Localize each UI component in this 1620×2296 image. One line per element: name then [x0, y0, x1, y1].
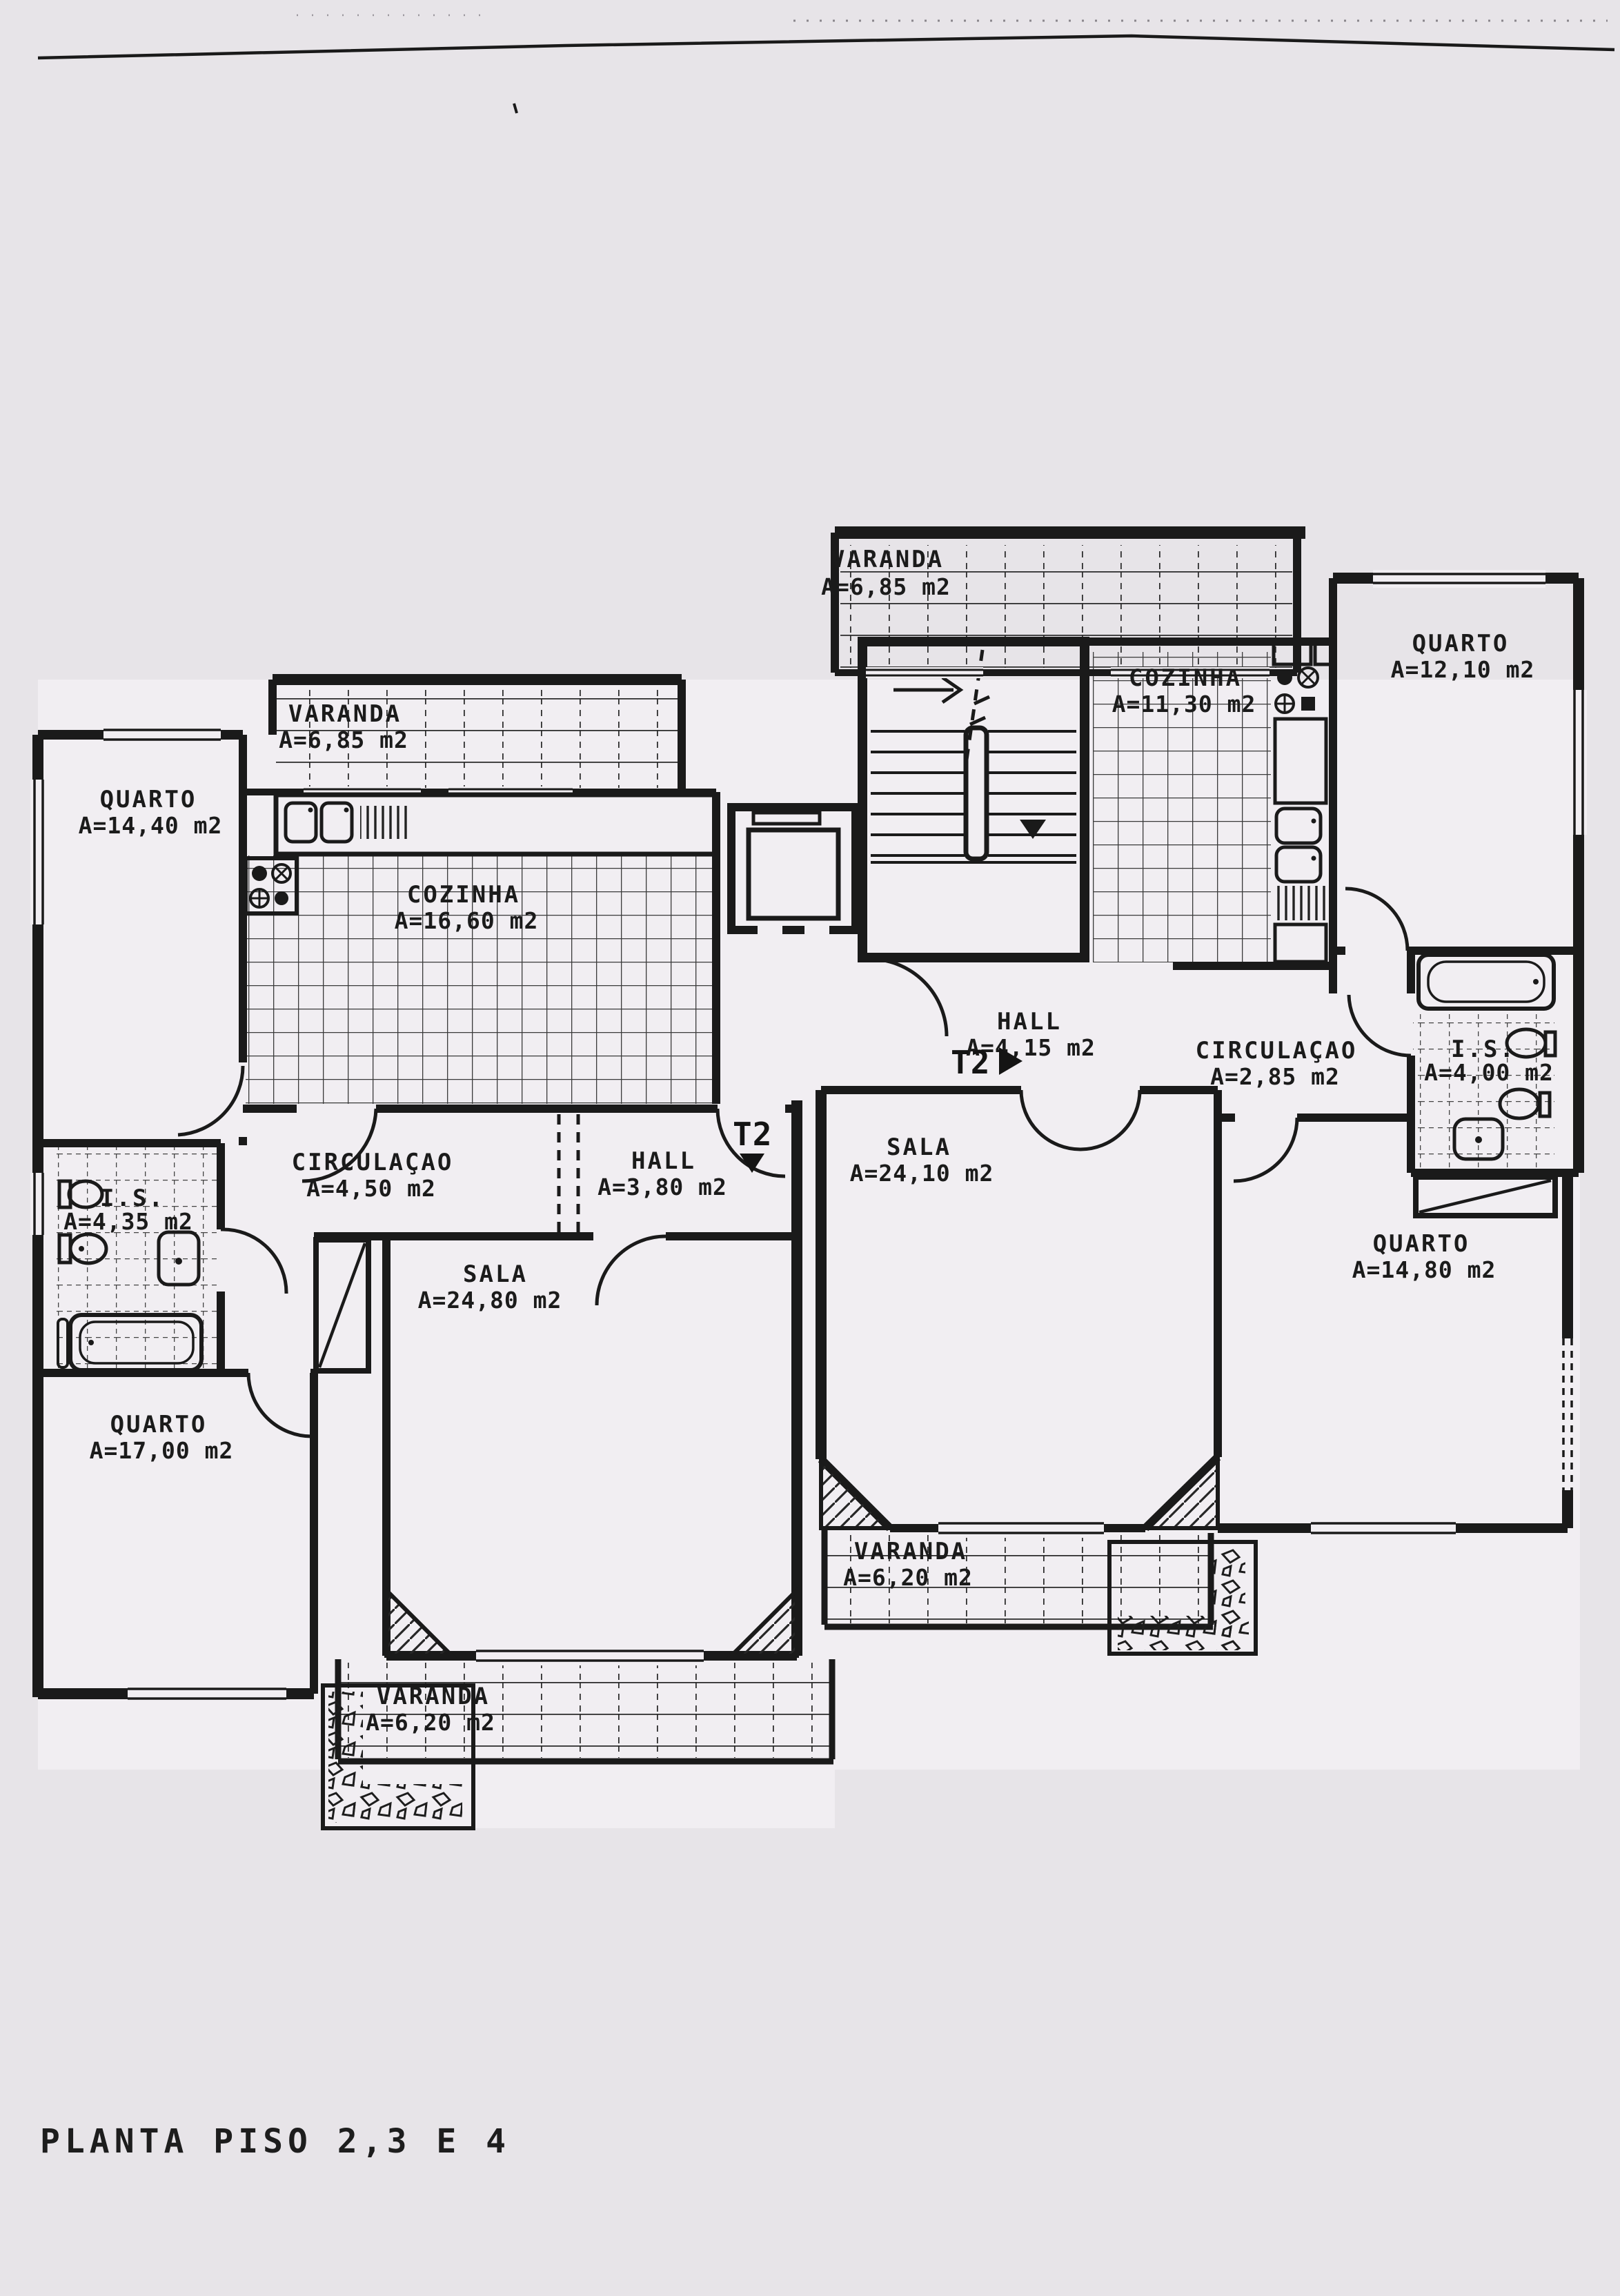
window-quarto-right-bottom [1311, 1518, 1456, 1538]
window-sala-right-bottom [938, 1518, 1104, 1538]
room-area: A=6,20 m2 [366, 1709, 495, 1736]
scanned-floor-plan-page: VARANDA A=6,85 m2 QUARTO A=12,10 m2 COZI… [0, 0, 1620, 2296]
unit-label: T2 [951, 1044, 990, 1081]
room-name: QUARTO [110, 1411, 208, 1438]
sink-tap-1 [308, 808, 313, 813]
drainboard-right [1275, 886, 1326, 920]
window-quarto-right-side [1559, 1338, 1576, 1490]
drainboard-left [360, 806, 408, 839]
room-name: SALA [463, 1260, 528, 1288]
room-area: A=24,10 m2 [850, 1160, 994, 1187]
room-name: SALA [887, 1134, 951, 1161]
room-area: A=6,85 m2 [279, 726, 408, 753]
label-quarto-top-right: QUARTO A=12,10 m2 [1391, 630, 1535, 683]
planter-stones-right-h [1118, 1616, 1249, 1650]
room-area: A=4,35 m2 [63, 1208, 193, 1235]
sink-tap-2 [344, 808, 349, 813]
room-area: A=14,40 m2 [79, 812, 223, 839]
paper-fold-line [38, 36, 1614, 58]
room-name: CIRCULAÇAO [292, 1149, 454, 1176]
room-name: QUARTO [1373, 1230, 1470, 1258]
room-name: CIRCULAÇAO [1196, 1037, 1358, 1065]
room-name: QUARTO [1412, 630, 1510, 657]
room-area: A=4,50 m2 [306, 1175, 436, 1202]
window-quarto-bl-bottom [128, 1684, 286, 1703]
room-area: A=11,30 m2 [1112, 691, 1256, 717]
room-area: A=16,60 m2 [395, 907, 539, 934]
room-area: A=6,85 m2 [821, 573, 951, 600]
window-quarto-left-side [30, 780, 46, 924]
scan-artifacts [38, 15, 1614, 113]
room-name: VARANDA [377, 1683, 490, 1710]
label-varanda-right: VARANDA A=6,20 m2 [843, 1538, 973, 1591]
room-name: COZINHA [1129, 664, 1242, 692]
label-cozinha-right: COZINHA A=11,30 m2 [1112, 664, 1256, 717]
room-area: A=3,80 m2 [597, 1174, 727, 1200]
label-circulacao-left: CIRCULAÇAO A=4,50 m2 [292, 1149, 454, 1202]
room-area: A=2,85 m2 [1210, 1063, 1340, 1090]
room-name: HALL [997, 1008, 1062, 1036]
room-name: QUARTO [100, 786, 197, 813]
window-sala-left-bottom [476, 1646, 704, 1665]
label-varanda-left: VARANDA A=6,85 m2 [279, 700, 408, 753]
window-is-left-side [30, 1173, 46, 1235]
window-quarto-tr-side [1570, 690, 1587, 835]
room-area: A=24,80 m2 [418, 1287, 562, 1314]
room-area: A=4,00 m2 [1424, 1059, 1554, 1086]
room-name: HALL [631, 1147, 696, 1175]
window-quarto-left-top [103, 725, 221, 744]
unit-label: T2 [733, 1116, 772, 1153]
room-name: VARANDA [854, 1538, 967, 1565]
label-cozinha-left: COZINHA A=16,60 m2 [395, 881, 539, 934]
room-name: COZINHA [407, 881, 520, 909]
sink-right-tap-1 [1312, 819, 1316, 824]
room-area: A=12,10 m2 [1391, 656, 1535, 683]
label-circulacao-right: CIRCULAÇAO A=2,85 m2 [1196, 1037, 1358, 1090]
room-name: VARANDA [831, 546, 944, 573]
sink-right-tap-2 [1312, 856, 1316, 861]
floor-plan-drawing: VARANDA A=6,85 m2 QUARTO A=12,10 m2 COZI… [0, 0, 1620, 2296]
window-quarto-tr-top [1373, 570, 1545, 588]
plan-title: PLANTA PISO 2,3 E 4 [40, 2122, 511, 2161]
room-area: A=14,80 m2 [1352, 1256, 1496, 1283]
planter-stones-bottom-h [348, 1784, 462, 1820]
room-area: A=6,20 m2 [843, 1564, 973, 1591]
label-varanda-bottom: VARANDA A=6,20 m2 [366, 1683, 495, 1736]
room-area: A=17,00 m2 [90, 1437, 234, 1464]
ink-speck [514, 103, 517, 113]
label-varanda-top: VARANDA A=6,85 m2 [821, 546, 951, 600]
room-fills [38, 680, 1580, 1828]
room-name: VARANDA [288, 700, 402, 728]
